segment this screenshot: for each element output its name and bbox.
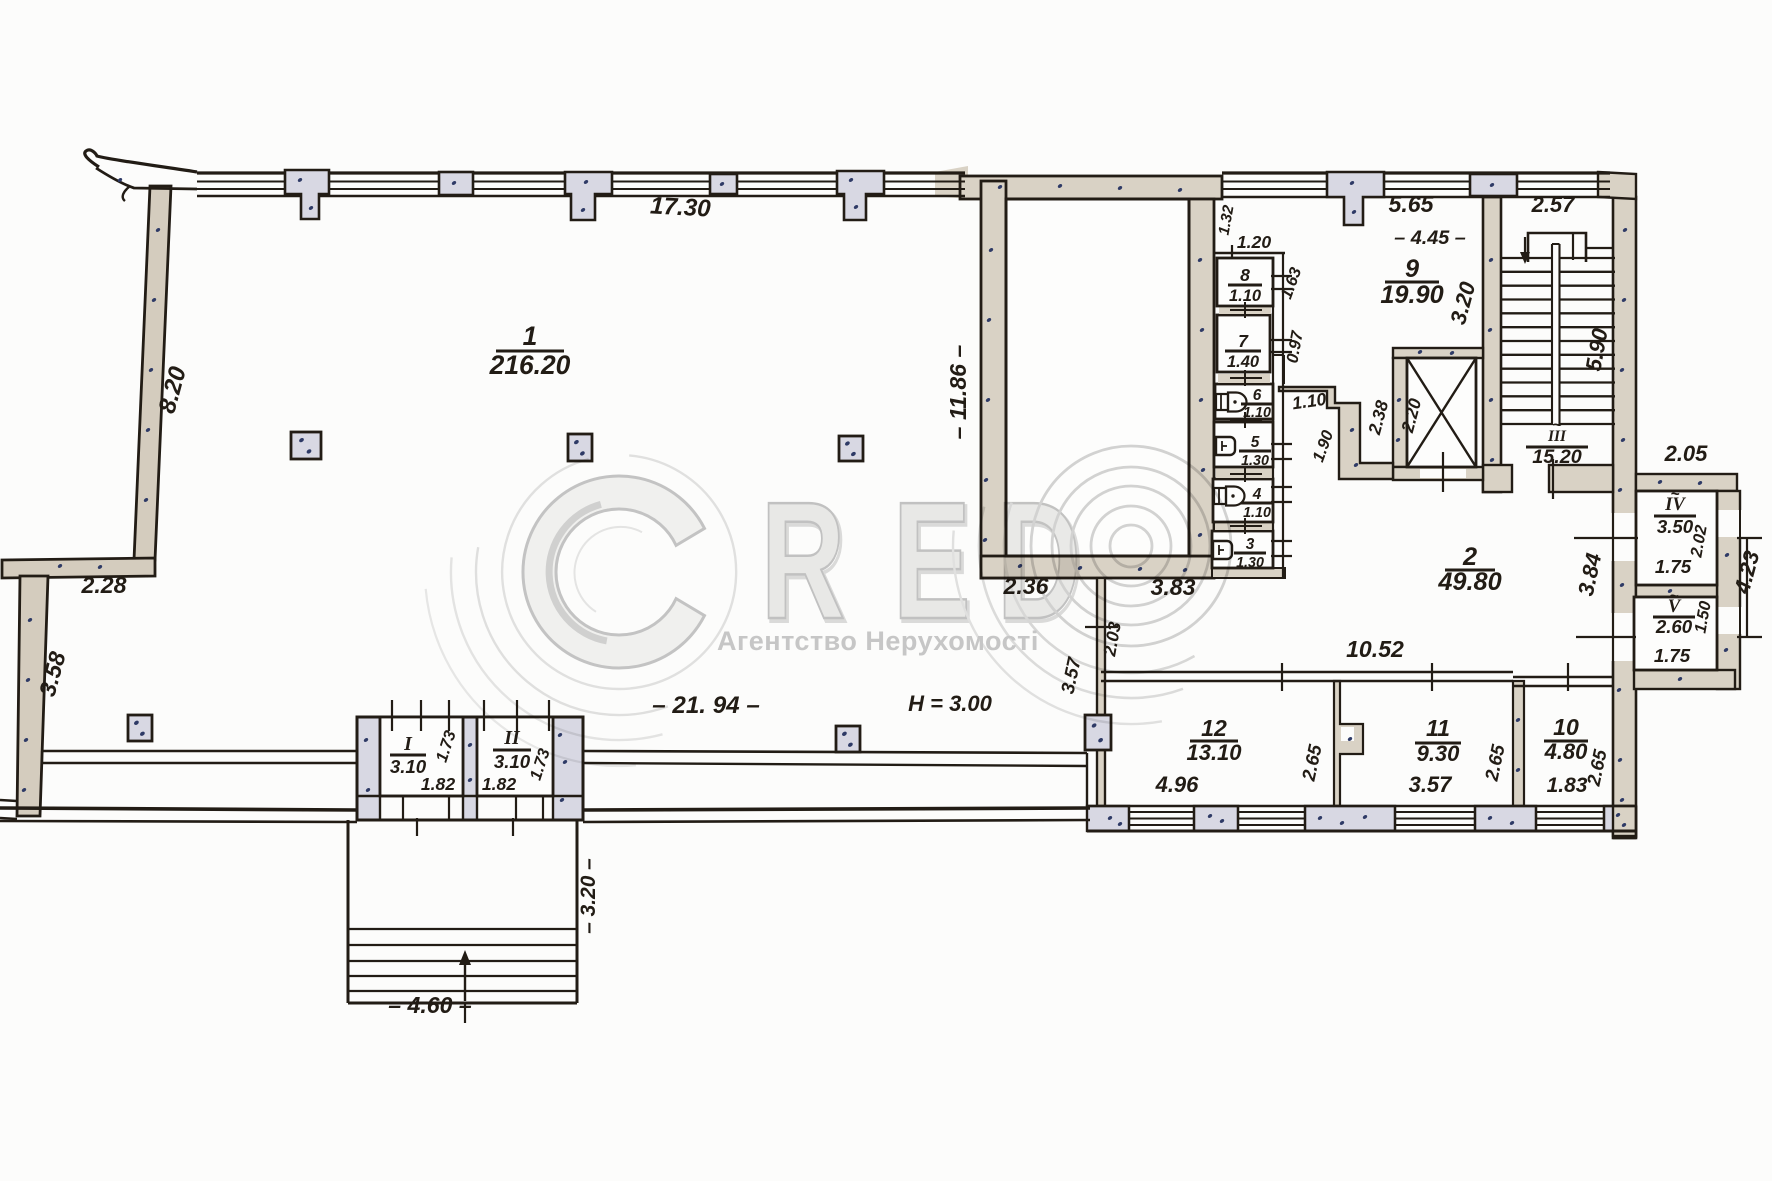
svg-text:2.60: 2.60 xyxy=(1655,616,1693,637)
svg-text:1.10: 1.10 xyxy=(1243,405,1271,421)
svg-text:4: 4 xyxy=(1252,486,1262,503)
svg-text:10.52: 10.52 xyxy=(1346,636,1404,662)
svg-text:1.82: 1.82 xyxy=(421,774,455,794)
svg-text:1.20: 1.20 xyxy=(1237,232,1271,252)
svg-text:8: 8 xyxy=(1240,265,1250,285)
svg-text:12: 12 xyxy=(1201,715,1227,741)
svg-text:3.50: 3.50 xyxy=(1657,516,1694,537)
svg-text:7: 7 xyxy=(1238,331,1249,351)
svg-text:H = 3.00: H = 3.00 xyxy=(908,691,993,716)
svg-text:1.82: 1.82 xyxy=(482,774,516,794)
svg-text:1.75: 1.75 xyxy=(1655,556,1692,577)
svg-text:15.20: 15.20 xyxy=(1532,446,1582,468)
svg-text:9.30: 9.30 xyxy=(1417,741,1461,766)
svg-text:3.57: 3.57 xyxy=(1409,772,1454,797)
svg-text:1.30: 1.30 xyxy=(1236,555,1264,571)
svg-text:10: 10 xyxy=(1553,714,1579,740)
svg-text:1.10: 1.10 xyxy=(1243,505,1271,521)
svg-text:2.57: 2.57 xyxy=(1531,192,1577,217)
svg-text:4.96: 4.96 xyxy=(1155,772,1200,797)
svg-text:216.20: 216.20 xyxy=(489,350,571,380)
svg-text:~: ~ xyxy=(1671,486,1680,503)
svg-text:4.80: 4.80 xyxy=(1544,739,1589,764)
svg-text:1.30: 1.30 xyxy=(1241,453,1269,469)
svg-text:1.75: 1.75 xyxy=(1654,645,1691,666)
svg-text:1: 1 xyxy=(523,321,538,351)
svg-text:– 11.86 –: – 11.86 – xyxy=(945,345,971,440)
svg-text:~: ~ xyxy=(1553,417,1562,434)
svg-text:9: 9 xyxy=(1405,255,1419,283)
svg-text:2.05: 2.05 xyxy=(1664,441,1709,466)
svg-text:19.90: 19.90 xyxy=(1380,281,1443,309)
svg-text:– 4.60 –: – 4.60 – xyxy=(388,992,472,1018)
svg-text:2.28: 2.28 xyxy=(81,572,127,598)
svg-text:11: 11 xyxy=(1426,715,1450,741)
svg-text:6: 6 xyxy=(1253,387,1262,404)
svg-text:1.83: 1.83 xyxy=(1547,774,1588,797)
svg-text:3: 3 xyxy=(1246,536,1255,553)
svg-text:17.30: 17.30 xyxy=(649,192,711,222)
svg-text:– 4.45 –: – 4.45 – xyxy=(1394,227,1466,249)
svg-text:2: 2 xyxy=(1462,543,1477,571)
svg-text:– 21. 94 –: – 21. 94 – xyxy=(652,692,760,719)
svg-text:49.80: 49.80 xyxy=(1437,568,1501,596)
svg-text:3.10: 3.10 xyxy=(494,751,531,772)
svg-text:5.65: 5.65 xyxy=(1389,191,1435,217)
svg-text:13.10: 13.10 xyxy=(1186,740,1242,765)
svg-text:I: I xyxy=(403,733,413,755)
svg-text:1.40: 1.40 xyxy=(1227,353,1260,371)
svg-text:Агентство Нерухомості: Агентство Нерухомості xyxy=(717,626,1039,656)
svg-text:– 3.20 –: – 3.20 – xyxy=(577,858,600,934)
svg-text:5: 5 xyxy=(1251,434,1260,451)
svg-text:1.10: 1.10 xyxy=(1229,287,1262,305)
